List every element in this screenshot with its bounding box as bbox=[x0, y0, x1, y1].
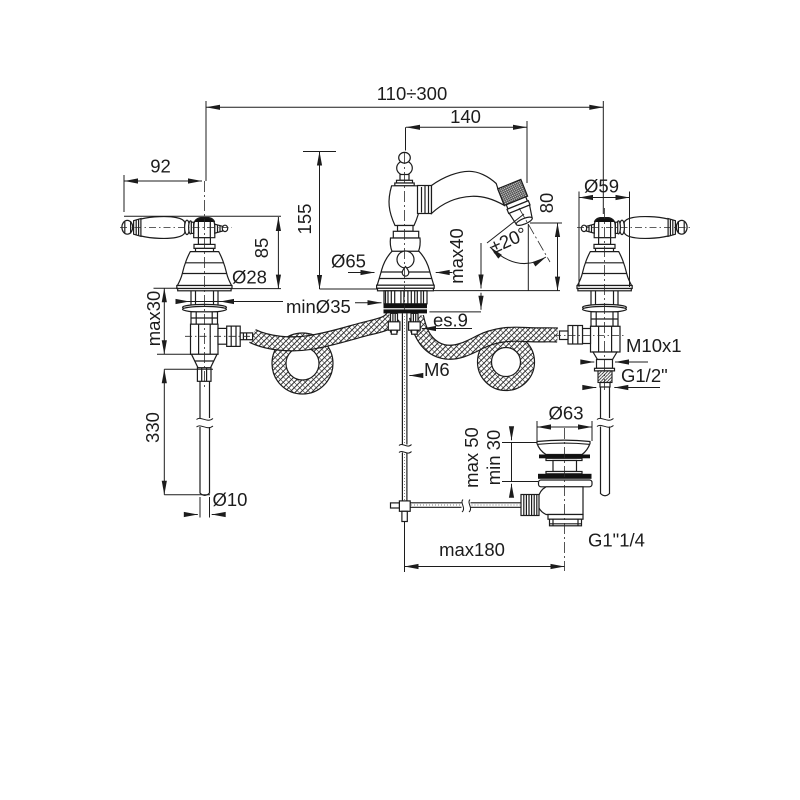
svg-text:Ø59: Ø59 bbox=[584, 176, 619, 197]
svg-text:85: 85 bbox=[251, 238, 272, 259]
svg-text:G1/2": G1/2" bbox=[621, 365, 668, 386]
svg-text:G1"1/4: G1"1/4 bbox=[588, 530, 645, 551]
svg-text:max40: max40 bbox=[446, 228, 467, 284]
svg-text:min 30: min 30 bbox=[483, 430, 504, 486]
svg-text:es.9: es.9 bbox=[433, 310, 468, 331]
svg-text:minØ35: minØ35 bbox=[286, 296, 351, 317]
svg-text:Ø10: Ø10 bbox=[213, 489, 248, 510]
svg-text:92: 92 bbox=[150, 156, 171, 177]
svg-text:110÷300: 110÷300 bbox=[377, 83, 448, 104]
svg-text:max 50: max 50 bbox=[461, 427, 482, 488]
svg-text:Ø63: Ø63 bbox=[549, 403, 584, 424]
svg-text:Ø28: Ø28 bbox=[232, 267, 267, 288]
svg-text:155: 155 bbox=[294, 204, 315, 235]
svg-text:M6: M6 bbox=[424, 359, 450, 380]
svg-text:Ø65: Ø65 bbox=[331, 251, 366, 272]
svg-text:140: 140 bbox=[450, 106, 481, 127]
svg-text:330: 330 bbox=[142, 412, 163, 443]
svg-text:80: 80 bbox=[536, 193, 557, 214]
svg-text:max30: max30 bbox=[143, 291, 164, 347]
svg-text:M10x1: M10x1 bbox=[626, 335, 682, 356]
svg-text:max180: max180 bbox=[439, 539, 505, 560]
